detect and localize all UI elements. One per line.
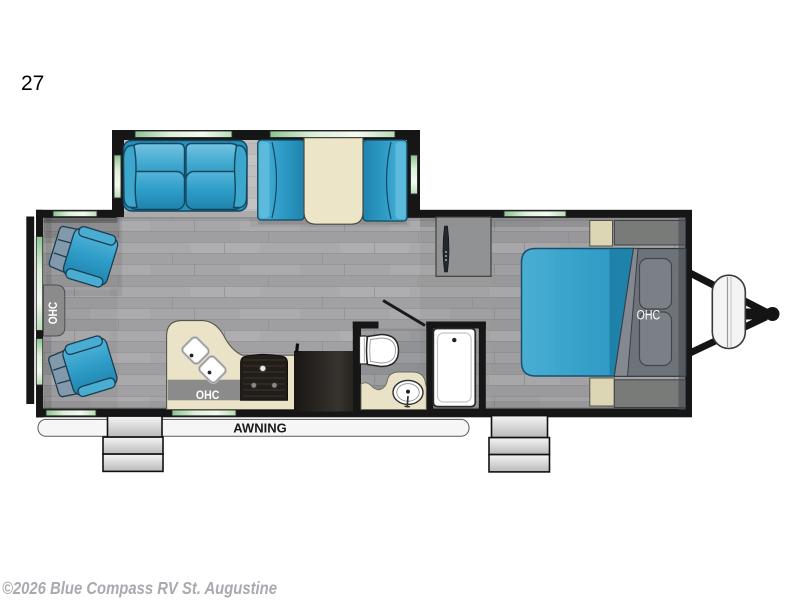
svg-text:AWNING: AWNING — [233, 420, 286, 435]
svg-text:©2026 Blue Compass RV St. Augu: ©2026 Blue Compass RV St. Augustine — [2, 578, 277, 598]
svg-text:OHC: OHC — [637, 308, 661, 323]
svg-text:27: 27 — [21, 72, 44, 95]
svg-text:OHC: OHC — [46, 301, 60, 324]
svg-text:OHC: OHC — [196, 388, 220, 402]
